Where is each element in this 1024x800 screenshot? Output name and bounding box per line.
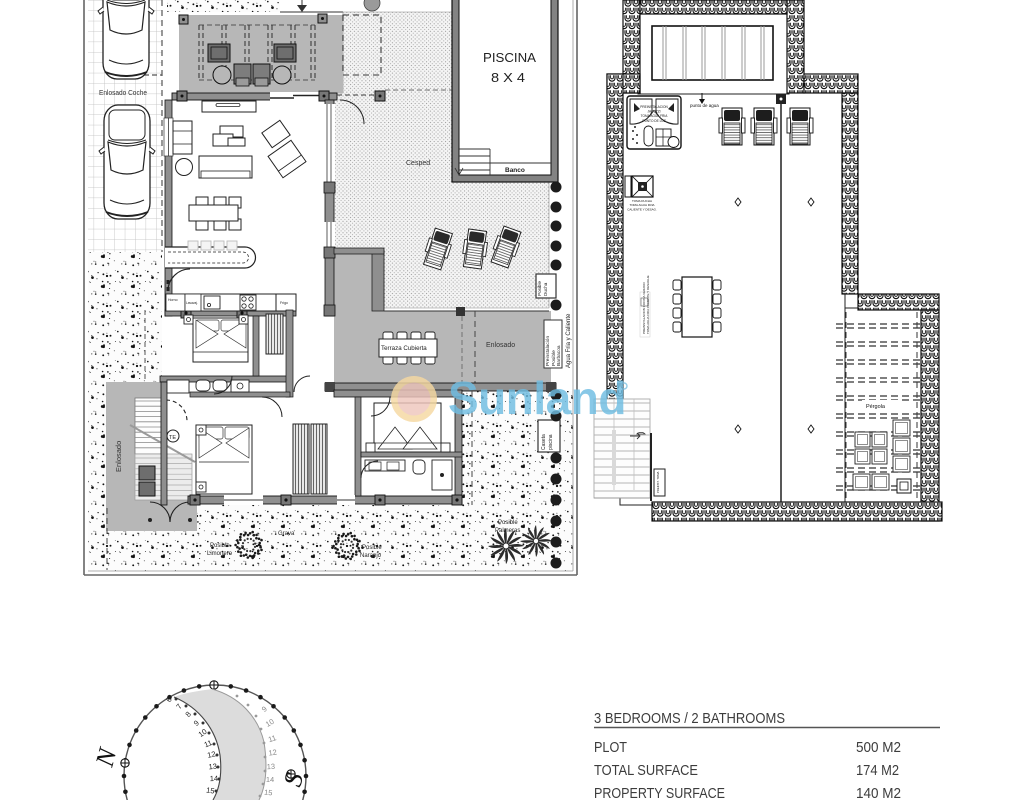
svg-text:Palmeras: Palmeras (495, 528, 520, 534)
svg-text:Barbacoa: Barbacoa (556, 345, 562, 366)
svg-text:Enlosado Coche: Enlosado Coche (99, 88, 147, 97)
svg-text:8 X 4: 8 X 4 (491, 70, 525, 85)
svg-text:Agua Fria y Caliente: Agua Fria y Caliente (566, 313, 572, 368)
svg-text:PISCINA: PISCINA (483, 50, 536, 65)
svg-text:12: 12 (268, 747, 278, 757)
svg-text:Sunland: Sunland (448, 372, 626, 424)
svg-text:Naranjo: Naranjo (360, 553, 382, 559)
svg-text:15: 15 (264, 788, 273, 798)
svg-text:CALIENTE Y DESAG.: CALIENTE Y DESAG. (627, 207, 657, 211)
svg-text:140 M2: 140 M2 (856, 785, 901, 800)
svg-text:Pérgola: Pérgola (866, 404, 886, 410)
svg-text:TE: TE (169, 435, 176, 441)
svg-text:TOMA AGUA FRIA: TOMA AGUA FRIA (641, 114, 669, 118)
svg-text:14: 14 (210, 774, 219, 783)
svg-text:TOTAL SURFACE: TOTAL SURFACE (594, 762, 698, 779)
svg-text:Banco: Banco (505, 167, 525, 174)
svg-text:3 BEDROOMS / 2 BATHROOMS: 3 BEDROOMS / 2 BATHROOMS (594, 710, 785, 727)
svg-text:Frigo: Frigo (280, 301, 288, 305)
svg-text:Lavavaj.: Lavavaj. (186, 301, 198, 305)
svg-text:PREINSTALACION: PREINSTALACION (640, 105, 668, 109)
svg-text:13: 13 (208, 762, 217, 772)
svg-text:PREINST. TOMA: PREINST. TOMA (656, 472, 660, 493)
svg-text:piscina: piscina (548, 434, 554, 450)
svg-text:Posible: Posible (537, 280, 542, 296)
svg-text:Posible: Posible (362, 545, 382, 551)
svg-text:PUNTO DE LUZ: PUNTO DE LUZ (642, 119, 665, 123)
svg-text:Caseta: Caseta (541, 434, 547, 450)
svg-text:13: 13 (266, 762, 275, 771)
svg-text:Posible: Posible (498, 520, 518, 526)
svg-text:Limonero: Limonero (207, 551, 233, 557)
svg-text:Grava: Grava (278, 531, 295, 537)
svg-text:Ducha: Ducha (543, 282, 548, 296)
svg-text:punto de agua: punto de agua (690, 103, 719, 108)
svg-text:JACUZZI: JACUZZI (647, 110, 660, 114)
svg-text:174 M2: 174 M2 (856, 762, 899, 779)
svg-text:Enlosado: Enlosado (114, 441, 123, 472)
svg-text:14: 14 (266, 775, 274, 784)
svg-text:Preinstalación: Preinstalación (545, 336, 551, 366)
svg-text:Terraza Cubierta: Terraza Cubierta (381, 345, 427, 352)
svg-text:Enlosado: Enlosado (486, 342, 515, 349)
svg-text:Cesped: Cesped (406, 160, 430, 167)
svg-text:Horno: Horno (168, 298, 178, 302)
svg-text:Posible: Posible (210, 543, 230, 549)
svg-text:PLOT: PLOT (594, 739, 627, 756)
svg-text:PROPERTY SURFACE: PROPERTY SURFACE (594, 785, 725, 800)
svg-text:500 M2: 500 M2 (856, 739, 901, 756)
svg-text:15: 15 (206, 785, 216, 795)
